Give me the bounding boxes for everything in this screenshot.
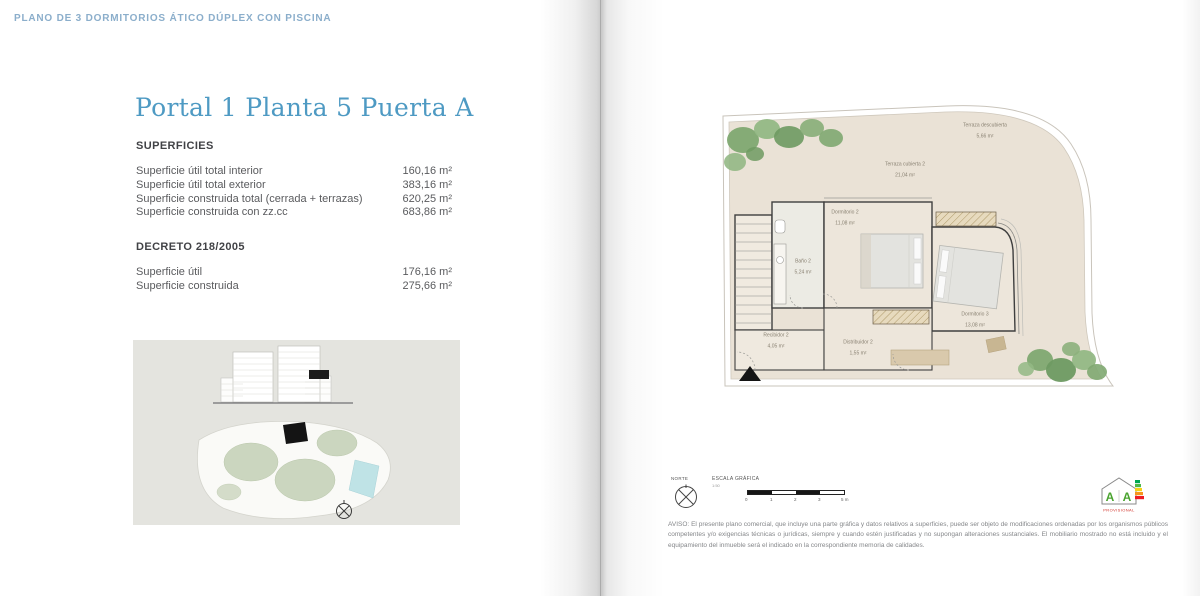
escala-grafica-label: ESCALA GRÁFICA [712,476,759,482]
unit-marker-siteplan [283,422,308,444]
provisional-label: PROVISIONAL [1103,508,1135,513]
energy-scale-bars [1135,480,1144,499]
table-row: Superficie útil total exterior 383,16 m² [136,179,452,193]
site-plan-figure [133,340,460,525]
area-label: Superficie construida con zz.cc [136,206,288,220]
area-label: Superficie construida [136,280,239,294]
area-value: 620,25 m² [402,193,452,207]
table-row: Superficie construida 275,66 m² [136,280,452,294]
room-label-terraza-descubierta: Terraza descubierta 5,66 m² [963,121,1007,142]
area-label: Superficie construida total (cerrada + t… [136,193,363,207]
table-row: Superficie construida total (cerrada + t… [136,193,452,207]
escala-ratio-label: 1:50 [712,483,720,488]
site-plan-graphic [133,340,460,525]
bathroom-fixtures [774,220,786,304]
norte-label: NORTE [671,476,688,481]
area-value: 160,16 m² [402,165,452,179]
floor-plan-graphic [695,98,1135,393]
wardrobe [873,310,929,324]
room-label-dormitorio-2: Dormitorio 2 11,08 m² [831,208,858,229]
table-row: Superficie construida con zz.cc 683,86 m… [136,206,452,220]
building-elevation [213,346,353,403]
room-label-bano-2: Baño 2 5,24 m² [795,257,812,278]
table-row: Superficie útil total interior 160,16 m² [136,165,452,179]
bed-bedroom-3 [933,245,1003,308]
area-label: Superficie útil [136,266,202,280]
room-label-dormitorio-3: Dormitorio 3 13,08 m² [961,310,988,331]
area-value: 275,66 m² [402,280,452,294]
bed-bedroom-2 [861,234,923,288]
room-label-distribuidor-2: Distribuidor 2 1,55 m² [843,338,872,359]
scale-ticks: 0 1 2 3 5 m [745,497,849,505]
scale-tick: 2 [794,497,797,502]
area-label: Superficie útil total exterior [136,179,266,193]
scale-tick: 3 [818,497,821,502]
superficies-heading: SUPERFICIES [136,140,214,152]
page-title: Portal 1 Planta 5 Puerta A [135,93,474,122]
scale-bar [747,490,845,495]
decreto-heading: DECRETO 218/2005 [136,241,245,253]
energy-letter: A [1123,490,1132,504]
floor-plan-figure: Terraza descubierta 5,66 m² Terraza cubi… [695,98,1135,393]
stairs-room [735,215,772,330]
page-fold-line [600,0,601,596]
table-row: Superficie útil 176,16 m² [136,266,452,280]
page-fold-shadow [540,0,664,596]
area-value: 176,16 m² [402,266,452,280]
brochure-spread: PLANO DE 3 DORMITORIOS ÁTICO DÚPLEX CON … [0,0,1200,596]
bench [891,350,949,365]
page-right-edge-shadow [1182,0,1200,596]
scale-tick: 5 m [841,497,849,502]
room-label-terraza-cubierta: Terraza cubierta 2 21,04 m² [885,160,925,181]
north-compass-icon [671,482,701,517]
superficies-table: Superficie útil total interior 160,16 m²… [136,165,452,220]
unit-marker-elevation [309,370,329,379]
area-value: 383,16 m² [402,179,452,193]
room-label-recibidor-2: Recibidor 2 4,05 m² [763,331,788,352]
area-label: Superficie útil total interior [136,165,263,179]
wardrobe [936,212,996,226]
area-value: 683,86 m² [402,206,452,220]
energy-rating-icon: A A PROVISIONAL [1099,473,1147,520]
decreto-table: Superficie útil 176,16 m² Superficie con… [136,266,452,294]
doc-header-label: PLANO DE 3 DORMITORIOS ÁTICO DÚPLEX CON … [14,13,331,24]
scale-tick: 0 [745,497,748,502]
energy-letter: A [1106,490,1115,504]
disclaimer-text: AVISO: El presente plano comercial, que … [668,520,1168,551]
site-map [197,421,390,518]
scale-tick: 1 [770,497,773,502]
